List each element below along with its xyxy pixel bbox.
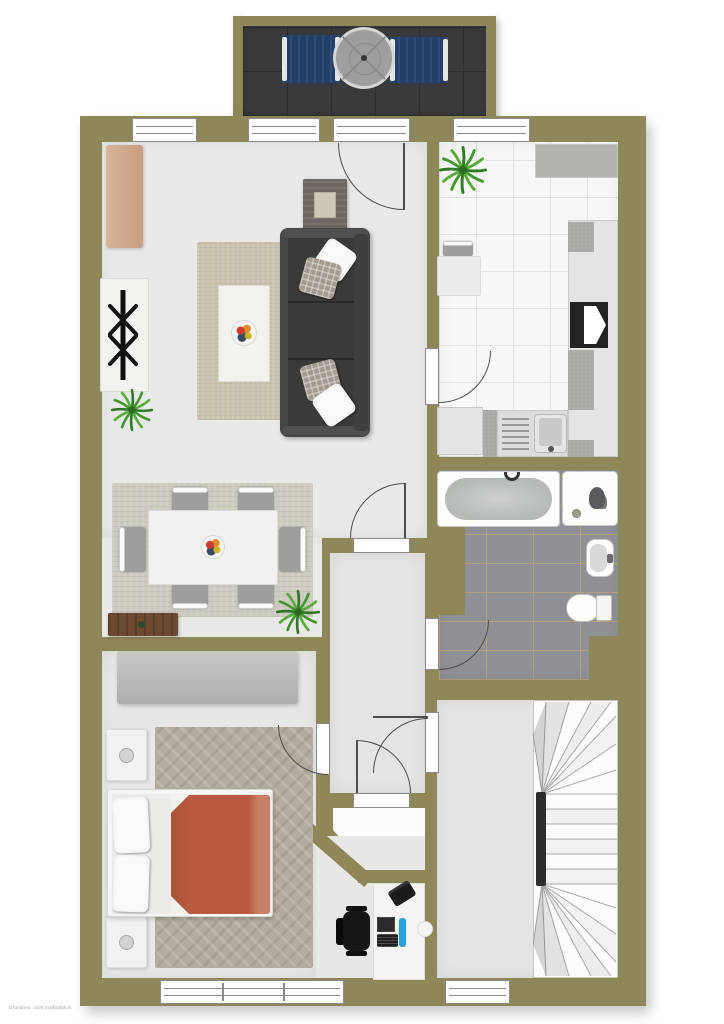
winder-staircase (533, 700, 618, 978)
chair-back (238, 487, 274, 493)
fruit-bowl (201, 535, 225, 559)
sideboard-knob (138, 621, 145, 628)
kitchen-counter-speckle (483, 410, 497, 457)
shower-drain-icon (572, 509, 581, 518)
blanket-fold (171, 896, 189, 914)
bathroom-wall-notch-corner (589, 636, 618, 680)
kitchen-counter-speckle (568, 222, 594, 252)
kitchen-corner-counter (535, 144, 618, 178)
plant-icon (110, 388, 154, 432)
bathtub-basin (445, 478, 552, 520)
balcony-wall-top (233, 16, 496, 26)
desk-cable-notch (417, 921, 433, 937)
dining-chair (119, 527, 146, 572)
wardrobe (117, 651, 298, 704)
stair-hall-window (445, 980, 510, 1004)
window (248, 118, 320, 142)
dining-chair (238, 582, 274, 609)
kitchen-window (453, 118, 530, 142)
kitchen-table (437, 256, 481, 296)
bed-pillow (112, 854, 150, 912)
bathtub (437, 471, 560, 527)
parasol-table (333, 27, 395, 89)
nightstand-knob (119, 748, 134, 763)
chair-seat (343, 911, 370, 951)
stair-hall-door-leaf (373, 716, 428, 718)
monitor-icon (377, 917, 395, 932)
balcony-door-leaf (403, 143, 405, 210)
tv-icon (106, 284, 140, 386)
dining-chair (172, 582, 208, 609)
kitchen-counter-speckle (568, 350, 594, 410)
window-mullion (222, 983, 224, 1001)
chair-armrest (346, 906, 367, 911)
faucet-icon (548, 446, 554, 452)
chair-back (443, 241, 473, 246)
double-bed (107, 789, 273, 917)
door-jamb (353, 793, 410, 808)
shower-tray (562, 471, 618, 526)
keyboard-icon (377, 934, 398, 947)
parasol-center (361, 55, 367, 61)
sideboard (108, 613, 178, 636)
plant-icon (438, 144, 488, 196)
bed-blanket (171, 795, 270, 914)
shower-head-icon (589, 487, 605, 509)
washbasin-faucet-icon (607, 554, 613, 563)
dresser (106, 145, 143, 248)
lounger-end-bar (282, 37, 287, 81)
bedroom-french-door (160, 980, 344, 1004)
sun-lounger-left (282, 35, 340, 83)
sofa-back (354, 234, 368, 431)
nightstand-knob (119, 935, 134, 950)
fruit-bowl (231, 320, 257, 346)
toilet (566, 594, 600, 622)
drainboard-icon (502, 417, 529, 450)
chair-back (300, 527, 306, 572)
chair-armrest (346, 951, 367, 956)
living-hall-door-leaf (404, 483, 406, 538)
sofa-seam (288, 301, 354, 303)
balcony-door (333, 118, 410, 142)
sofa-seam (288, 358, 354, 360)
kitchen-counter-left (437, 407, 483, 455)
blanket-fold (171, 795, 189, 813)
balcony-wall-left (233, 16, 243, 118)
chair-back (119, 527, 125, 572)
stove-icon (570, 302, 608, 348)
floor-plan: Grundriss, nicht maßstäblich (0, 0, 724, 1024)
closet-bottom-wall (358, 870, 425, 883)
kitchen-counter-speckle (568, 440, 594, 457)
door-jamb (425, 618, 439, 670)
side-table (303, 179, 347, 231)
chair-back (238, 603, 274, 609)
closet-door-leaf (356, 740, 358, 793)
lounger-end-bar (443, 39, 448, 81)
side-table-pot (314, 192, 336, 218)
bed-pillow (112, 796, 151, 854)
window (132, 118, 197, 142)
chair-back (172, 487, 208, 493)
balcony-wall-right (486, 16, 496, 118)
sun-lounger-right (390, 37, 448, 83)
office-chair (336, 906, 374, 956)
kitchen-sink (534, 414, 567, 453)
toilet-tank (596, 595, 612, 621)
door-jamb (425, 348, 439, 405)
window-mullion (283, 983, 285, 1001)
plant-icon (275, 588, 321, 636)
kitchen-chair (443, 241, 473, 257)
chair-back (172, 603, 208, 609)
door-jamb (353, 538, 410, 553)
sink-basin (539, 418, 562, 446)
stove-door (584, 306, 606, 344)
dining-chair (279, 527, 306, 572)
bathroom-wall-notch-left (439, 527, 465, 615)
watermark-text: Grundriss, nicht maßstäblich (9, 1005, 72, 1010)
washbasin-bowl (590, 544, 607, 572)
bottle-icon (399, 918, 406, 947)
washbasin (586, 539, 614, 577)
